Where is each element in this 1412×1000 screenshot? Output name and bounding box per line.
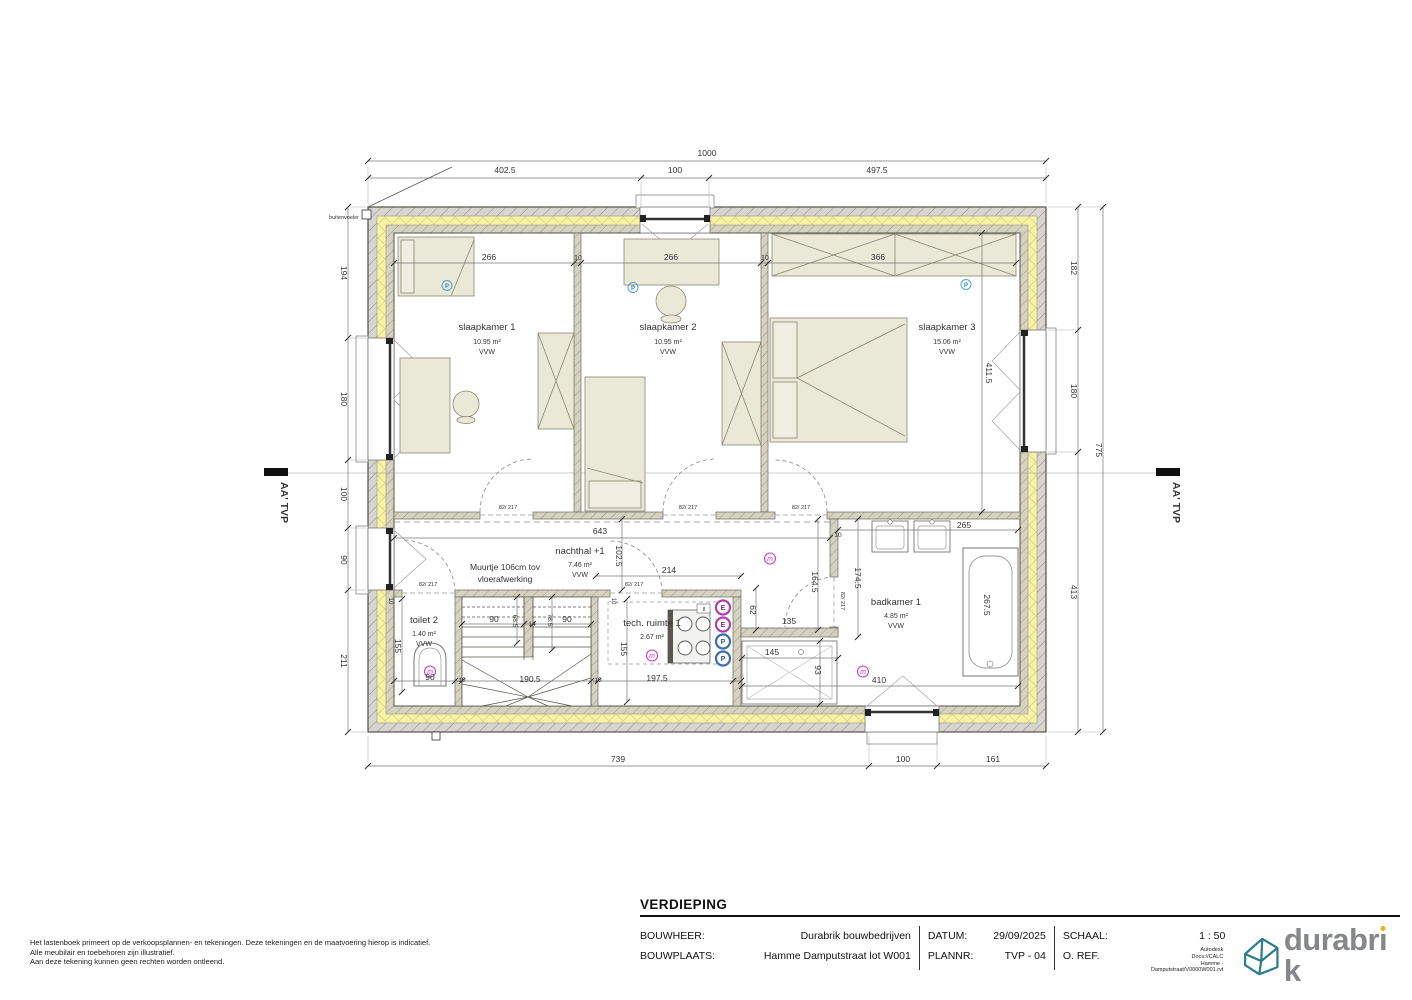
- room-label: badkamer 1: [871, 597, 921, 608]
- titleblock-col-client: BOUWHEER: Durabrik bouwbedrijven BOUWPLA…: [640, 926, 911, 966]
- dim-label: 211: [339, 654, 349, 668]
- outlet-symbol-letter: P: [964, 283, 968, 289]
- dim-label: 155: [619, 642, 629, 656]
- outlet-symbol-letter: P: [631, 286, 635, 292]
- dim-label: 100: [896, 754, 910, 764]
- dim-label: 10: [458, 677, 466, 684]
- dim-label: 643: [593, 526, 607, 536]
- disclaimer: Het lastenboek primeert op de verkoopspl…: [30, 938, 430, 967]
- room-label: slaapkamer 1: [458, 322, 515, 333]
- bed-slaapkamer1: [398, 237, 474, 296]
- door-size-label: 82/ 217: [839, 592, 845, 610]
- door-size-label: 82/ 217: [625, 582, 643, 588]
- dim-label: 413: [1069, 585, 1079, 599]
- room-label: slaapkamer 2: [639, 322, 696, 333]
- door-size-label: 82/ 217: [419, 582, 437, 588]
- wardrobe-slaapkamer1: [538, 333, 574, 429]
- room-floor: VVW: [416, 641, 432, 648]
- room-floor: VVW: [479, 349, 495, 356]
- dim-label: 10: [594, 677, 602, 684]
- dim-label: 90: [489, 614, 499, 624]
- dim-label: 164.5: [810, 571, 820, 593]
- titleblock-col-date: DATUM: 29/09/2025 PLANNR: TVP - 04: [928, 926, 1046, 966]
- room-floor: VVW: [572, 572, 588, 579]
- appliance-label: 8: [703, 607, 706, 613]
- title-rule: [640, 915, 1400, 917]
- bed-slaapkamer3: [770, 318, 907, 442]
- title-block: VERDIEPING BOUWHEER: Durabrik bouwbedrij…: [640, 897, 1400, 986]
- room-label: nachthal +1: [555, 546, 604, 557]
- dim-label: 266: [664, 252, 678, 262]
- plannr-value: TVP - 04: [1005, 946, 1046, 966]
- schaal-label: SCHAAL:: [1063, 926, 1108, 946]
- dim-label: 267.5: [982, 594, 992, 616]
- switch-symbol-letter: m: [860, 669, 866, 676]
- dim-label: 366: [871, 252, 885, 262]
- dim-label: 10: [834, 532, 842, 539]
- dim-label: 180: [1069, 384, 1079, 398]
- bed-slaapkamer2: [585, 377, 645, 511]
- dim-label: 197.5: [646, 673, 668, 683]
- file-reference: Autodesk Docs://CALC Hamme - Damputstraa…: [1103, 947, 1223, 974]
- section-marker-label: AA' TVP: [278, 482, 290, 523]
- note-label: Muurtje 106cm tov: [470, 562, 541, 572]
- room-area: 15.06 m²: [933, 339, 961, 346]
- dim-label: 214: [662, 565, 676, 575]
- dim-label: 10: [387, 598, 393, 605]
- file-reference-line: Damputstraat/V0000W001.rvt: [1103, 967, 1223, 974]
- dim-label: 161: [986, 754, 1000, 764]
- room-label: slaapkamer 3: [918, 322, 975, 333]
- dim-label: 155: [393, 639, 403, 653]
- dim-label: 68.5: [511, 615, 518, 628]
- logo-text-part: k: [1284, 953, 1301, 988]
- dim-label: 93: [813, 665, 823, 675]
- bouwheer-label: BOUWHEER:: [640, 926, 705, 946]
- dim-label: 10: [574, 255, 582, 262]
- door-size-label: 82/ 217: [792, 505, 810, 511]
- dim-label: 180: [339, 392, 349, 406]
- dim-label: 194: [339, 266, 349, 280]
- dim-label: 411.5: [984, 363, 994, 384]
- exterior-sensor: [432, 732, 440, 740]
- plannr-label: PLANNR:: [928, 946, 974, 966]
- dim-label: 10: [761, 255, 769, 262]
- dim-label: 1000: [698, 148, 717, 158]
- disclaimer-line: Het lastenboek primeert op de verkoopspl…: [30, 938, 430, 948]
- dim-label: 775: [1094, 443, 1104, 457]
- dim-label: 739: [611, 754, 625, 764]
- room-area: 10.95 m²: [473, 339, 501, 346]
- logo-i-dot: [1381, 926, 1386, 931]
- bouwheer-value: Durabrik bouwbedrijven: [801, 926, 911, 946]
- outlet-symbol-letter: P: [445, 284, 449, 290]
- switch-symbol-letter: m: [649, 653, 655, 660]
- dim-label: 62: [748, 605, 758, 615]
- floorplan-drawing: 1000402.5100497.519418010090211182180413…: [0, 0, 1412, 880]
- dim-label: 90: [562, 614, 572, 624]
- oref-label: O. REF.: [1063, 946, 1100, 966]
- switch-symbol-letter: m: [427, 669, 433, 676]
- note-label: vloerafwerking: [478, 574, 533, 584]
- panel-symbol-letter: P: [721, 656, 726, 663]
- durabrik-logo-icon: [1239, 932, 1284, 978]
- room-area: 10.95 m²: [654, 339, 682, 346]
- buitenvoeler-sensor: [362, 210, 371, 219]
- datum-value: 29/09/2025: [993, 926, 1046, 946]
- dim-label: 497.5: [866, 165, 888, 175]
- dim-label: 145: [765, 647, 779, 657]
- desk-slaapkamer2: [624, 239, 719, 285]
- panel-symbol-letter: E: [721, 605, 726, 612]
- dim-label: 102.5: [614, 545, 624, 567]
- room-label: tech. ruimte 1: [623, 618, 681, 629]
- plan-title: VERDIEPING: [640, 897, 1400, 912]
- section-marker-label: AA' TVP: [1170, 482, 1182, 523]
- titleblock-col-scale: SCHAAL: 1 : 50 O. REF. Autodesk Docs://C…: [1063, 926, 1226, 966]
- titleblock-divider: [919, 926, 920, 970]
- room-floor: VVW: [660, 349, 676, 356]
- dim-label: 402.5: [494, 165, 516, 175]
- switch-symbol-letter: m: [767, 556, 773, 563]
- disclaimer-line: Aan deze tekening kunnen geen rechten wo…: [30, 957, 430, 967]
- dim-label: 265: [957, 520, 971, 530]
- wardrobe-slaapkamer2: [722, 342, 761, 445]
- disclaimer-line: Alle meubilair en toebehoren zijn illust…: [30, 948, 430, 958]
- dim-label: 90: [339, 555, 349, 565]
- logo-text-part: durabr: [1284, 922, 1379, 957]
- sensor-label: buitenvoeler: [329, 215, 359, 221]
- dim-label: 174.5: [853, 567, 863, 589]
- bouwplaats-label: BOUWPLAATS:: [640, 946, 715, 966]
- bouwplaats-value: Hamme Damputstraat lot W001: [764, 946, 911, 966]
- dim-label: 14: [528, 621, 536, 628]
- room-floor: VVW: [939, 349, 955, 356]
- door-size-label: 82/ 217: [679, 505, 697, 511]
- dim-label: 135: [782, 616, 796, 626]
- durabrik-logo: durabrık: [1239, 924, 1400, 986]
- panel-symbol-letter: E: [721, 622, 726, 629]
- wardrobe-slaapkamer3: [772, 234, 1016, 276]
- room-floor: VVW: [888, 623, 904, 630]
- file-reference-line: Hamme -: [1103, 961, 1223, 968]
- dim-label: 182: [1069, 261, 1079, 275]
- desk-slaapkamer1: [400, 358, 450, 453]
- panel-symbol-letter: P: [721, 639, 726, 646]
- page: { "plan": { "labels": [ {"t":"1000","x":…: [0, 0, 1412, 1000]
- dim-label: 100: [668, 165, 682, 175]
- room-area: 2.67 m²: [640, 634, 664, 641]
- door-size-label: 82/ 217: [499, 505, 517, 511]
- dim-label: 266: [482, 252, 496, 262]
- file-reference-line: Docs://CALC: [1103, 954, 1223, 961]
- room-area: 1.40 m²: [412, 631, 436, 638]
- dim-label: 190.5: [519, 674, 541, 684]
- schaal-value: 1 : 50: [1199, 926, 1225, 946]
- titleblock-divider: [1054, 926, 1055, 970]
- room-label: toilet 2: [410, 615, 438, 626]
- room-area: 7.46 m²: [568, 562, 592, 569]
- file-reference-line: Autodesk: [1103, 947, 1223, 954]
- durabrik-logo-text: durabrık: [1284, 924, 1400, 986]
- datum-label: DATUM:: [928, 926, 967, 946]
- dim-label: 410: [872, 675, 886, 685]
- dim-label: 78.5: [546, 614, 553, 627]
- leader-line: [368, 167, 452, 207]
- dim-label: 10: [610, 598, 616, 605]
- dim-label: 100: [339, 487, 349, 501]
- room-area: 4.85 m²: [884, 613, 908, 620]
